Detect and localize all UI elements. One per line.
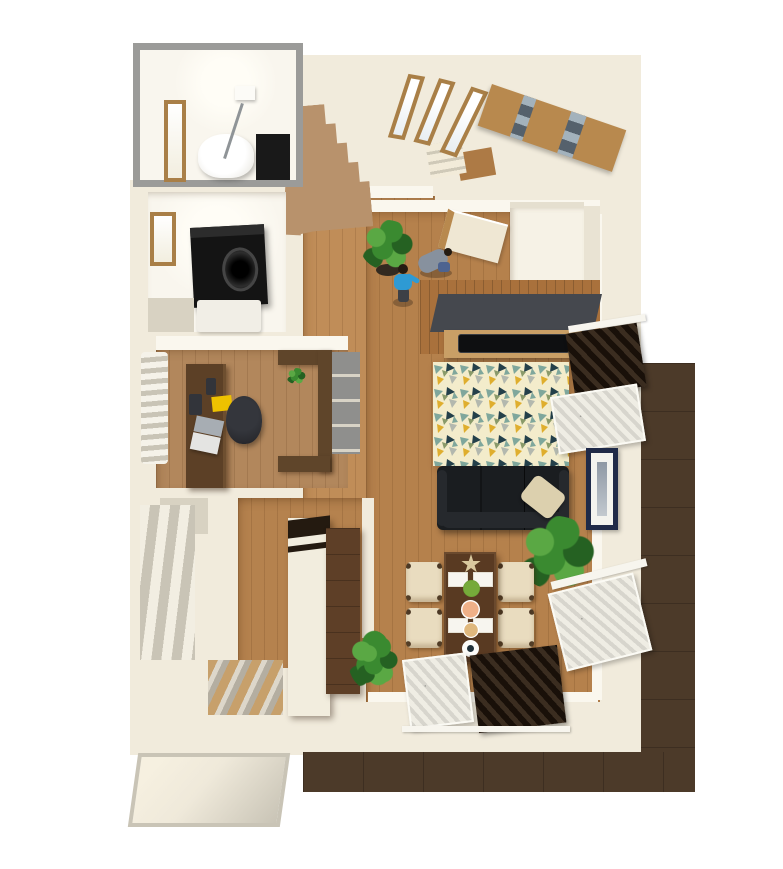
person-crouching [416, 248, 456, 278]
door-glass-slit [557, 111, 586, 158]
person-legs [398, 288, 409, 302]
cup [467, 645, 474, 652]
person-jeans [438, 262, 450, 272]
person-standing [392, 262, 414, 308]
dining-chair [498, 608, 534, 648]
ceiling-vent [235, 86, 255, 100]
kitchen-wall [362, 498, 374, 638]
calculator [189, 394, 202, 415]
fridge-top [288, 515, 330, 538]
dining-chair [406, 562, 442, 602]
counter-plant [286, 368, 306, 384]
wall-face [156, 336, 348, 350]
person-head [398, 264, 408, 274]
corner-plant [356, 636, 398, 686]
washing-machine [190, 224, 268, 308]
picture-art [597, 462, 607, 516]
washer-drum [221, 247, 259, 293]
washbasin [197, 300, 261, 332]
rug-pattern [433, 362, 569, 466]
bread-dish [463, 622, 479, 638]
sofa-armrest [437, 470, 447, 526]
balcony-right [641, 363, 695, 792]
laundry-window [150, 212, 176, 266]
dining-chair [498, 562, 534, 602]
bay-window [128, 753, 290, 827]
counter-bottom [278, 456, 330, 472]
door-glass-slit [510, 95, 537, 141]
laundry-cabinet [148, 298, 194, 332]
storage-shelving [140, 505, 195, 660]
sheer-bottom [402, 652, 474, 729]
salad-bowl [463, 580, 480, 597]
tv [458, 334, 570, 353]
floor-plan [0, 0, 783, 869]
drape-bottom [470, 645, 567, 733]
study-curtain [141, 352, 168, 464]
bath-door [164, 100, 186, 182]
fridge-top-edge [288, 541, 330, 552]
kitchen-mat [208, 660, 283, 715]
rug [433, 362, 569, 466]
dining-table [444, 552, 496, 664]
star-ornament [461, 554, 481, 574]
window-sill [402, 726, 570, 732]
counter-right [318, 350, 332, 472]
balcony-bottom [303, 752, 695, 792]
picture-frame [586, 448, 618, 530]
refrigerator [288, 518, 330, 716]
phone [206, 378, 216, 395]
bathroom [133, 43, 303, 187]
dining-chair [406, 608, 442, 648]
office-chair [226, 396, 262, 444]
person-head [444, 248, 452, 256]
salmon-dish [461, 600, 480, 619]
counter-cabinets [332, 352, 360, 454]
bath-panel [256, 134, 290, 180]
